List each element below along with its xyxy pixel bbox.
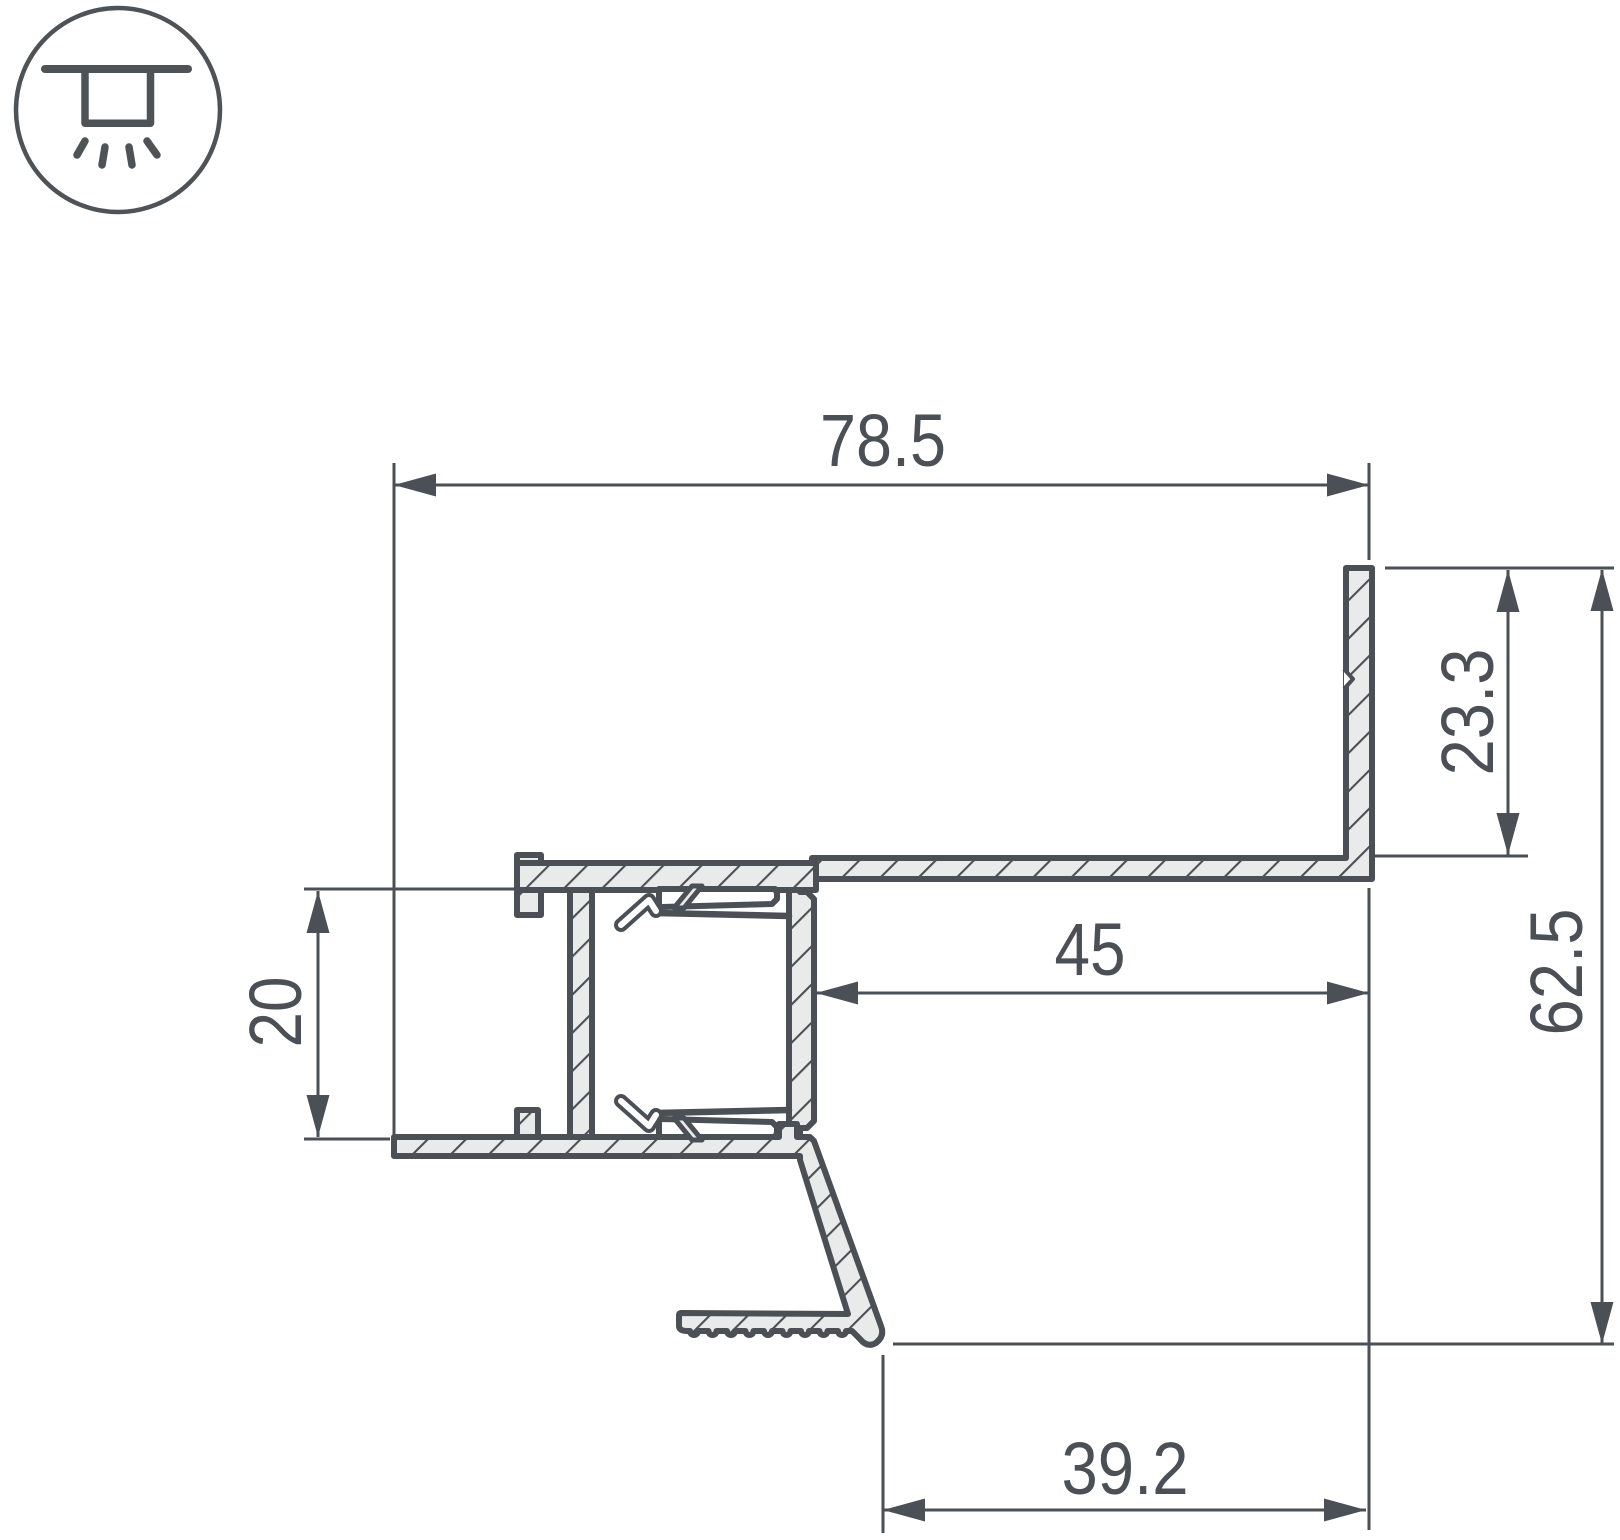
- svg-text:39.2: 39.2: [1062, 1427, 1189, 1510]
- svg-text:20: 20: [234, 977, 317, 1048]
- svg-text:23.3: 23.3: [1426, 649, 1509, 776]
- svg-text:62.5: 62.5: [1515, 909, 1598, 1036]
- svg-text:45: 45: [1055, 908, 1126, 991]
- svg-text:78.5: 78.5: [820, 399, 946, 482]
